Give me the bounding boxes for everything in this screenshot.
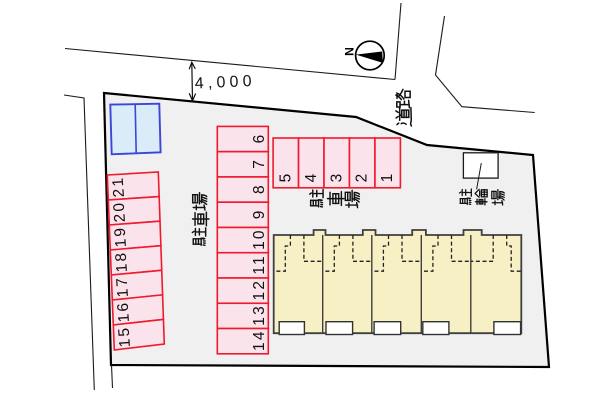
svg-text:18: 18	[113, 250, 131, 273]
svg-text:4: 4	[303, 172, 320, 183]
svg-text:13: 13	[251, 304, 268, 326]
svg-text:12: 12	[251, 279, 268, 301]
svg-text:3: 3	[328, 172, 345, 183]
svg-text:11: 11	[251, 254, 268, 275]
svg-text:7: 7	[251, 158, 268, 169]
svg-text:5: 5	[277, 172, 294, 183]
svg-text:20: 20	[111, 200, 129, 223]
svg-text:6: 6	[251, 133, 268, 144]
svg-text:4,000: 4,000	[194, 73, 256, 93]
svg-text:N: N	[343, 47, 357, 56]
svg-text:14: 14	[251, 329, 268, 351]
svg-text:10: 10	[251, 228, 268, 250]
svg-text:17: 17	[114, 275, 132, 298]
svg-text:9: 9	[251, 208, 268, 219]
svg-text:2: 2	[354, 172, 371, 183]
svg-text:1: 1	[379, 172, 396, 183]
svg-text:15: 15	[116, 325, 134, 348]
svg-text:16: 16	[115, 300, 133, 323]
svg-text:8: 8	[251, 183, 268, 194]
svg-text:19: 19	[112, 225, 130, 248]
svg-text:21: 21	[110, 175, 128, 198]
